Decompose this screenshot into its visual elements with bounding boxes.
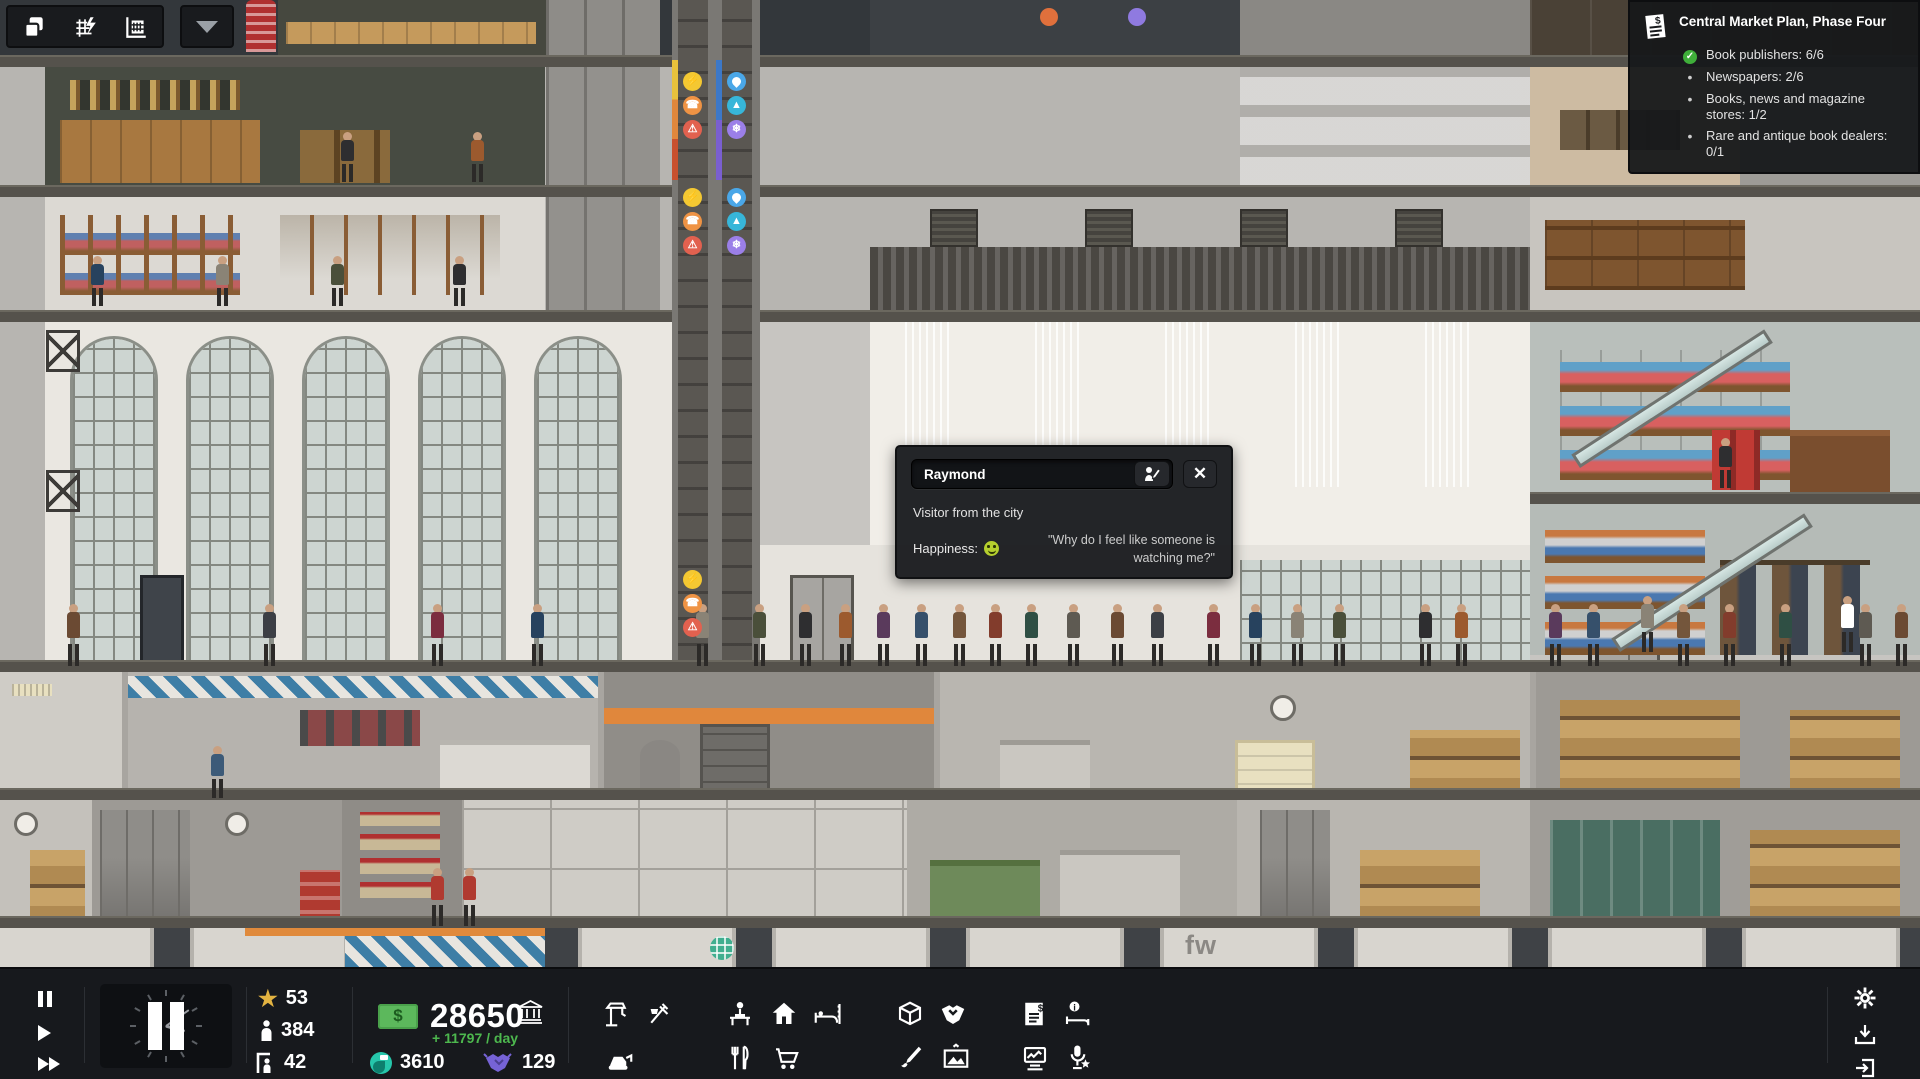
build-media-button[interactable] xyxy=(1014,1038,1056,1078)
star-icon: ★ xyxy=(258,989,278,1009)
riser-gas-icon: ▲ xyxy=(727,96,746,115)
build-offices-button[interactable] xyxy=(719,994,761,1034)
contracts-icon: $ xyxy=(1019,999,1049,1029)
person-quote: "Why do I feel like someone is watching … xyxy=(1045,531,1215,567)
riser-alarm-icon: ⚠ xyxy=(683,618,702,637)
paused-indicator xyxy=(148,1002,184,1050)
locker-bank xyxy=(1260,810,1330,928)
person-figure[interactable] xyxy=(1722,604,1738,666)
ac-vent xyxy=(12,684,52,696)
globe-sign xyxy=(710,936,734,960)
window-panes xyxy=(305,339,387,662)
objectives-title: Central Market Plan, Phase Four xyxy=(1679,12,1886,42)
hvac-unit xyxy=(930,209,978,247)
person-figure[interactable] xyxy=(988,604,1004,666)
exterior-wall xyxy=(1240,0,1530,55)
lobby-door[interactable] xyxy=(140,575,184,667)
jukebox xyxy=(246,0,276,52)
art-icon xyxy=(941,1043,971,1073)
person-figure[interactable] xyxy=(1066,604,1082,666)
objective-item: •Rare and antique book dealers: 0/1 xyxy=(1682,128,1906,160)
build-utilities-button[interactable] xyxy=(639,994,681,1034)
person-popup: ✕ Visitor from the city Happiness: "Why … xyxy=(895,445,1233,579)
settings-button[interactable] xyxy=(1848,983,1882,1013)
person-figure[interactable] xyxy=(1110,604,1126,666)
pub-patron-figure[interactable] xyxy=(470,132,486,182)
build-room-info-button[interactable]: i xyxy=(1056,994,1098,1034)
fire-escape xyxy=(46,330,80,372)
bullet-icon: • xyxy=(1688,91,1693,107)
population-stat: 384 xyxy=(260,1019,314,1042)
person-figure[interactable] xyxy=(1024,604,1040,666)
pub-patron-figure[interactable] xyxy=(340,132,356,182)
bullet-icon: • xyxy=(1688,128,1693,144)
lobby-arched-window xyxy=(302,336,390,662)
construction-icon xyxy=(601,999,631,1029)
chiller-icon xyxy=(1128,8,1146,26)
objective-item: •Books, news and magazine stores: 1/2 xyxy=(1682,91,1906,123)
person-happiness: Happiness: xyxy=(913,541,999,556)
person-figure[interactable] xyxy=(838,604,854,666)
build-restaurants-button[interactable] xyxy=(719,1038,761,1078)
play-button[interactable] xyxy=(38,1025,64,1047)
bank-button[interactable] xyxy=(512,997,548,1025)
slab xyxy=(0,916,1920,928)
chevron-down-icon xyxy=(196,21,218,33)
shopper-figure[interactable] xyxy=(1640,596,1656,652)
game-clock xyxy=(100,984,232,1068)
locker-bank xyxy=(100,810,190,928)
fast-forward-button[interactable] xyxy=(38,1057,64,1079)
mechanical-louver-floor xyxy=(870,247,1530,310)
clerk-figure[interactable] xyxy=(1718,438,1734,488)
game-screen: ⚡☎⚠⚡☎⚠⚡☎⚠▲❄▲❄fw xyxy=(0,0,1920,1079)
build-retail-button[interactable] xyxy=(765,1038,807,1078)
close-button[interactable]: ✕ xyxy=(1183,460,1217,488)
save-button[interactable] xyxy=(1848,1019,1882,1049)
storefront-glass xyxy=(1240,560,1530,668)
window-panes xyxy=(189,339,271,662)
build-events-button[interactable] xyxy=(1057,1038,1099,1078)
person-figure[interactable] xyxy=(1778,604,1794,666)
string-lights xyxy=(1295,322,1339,487)
services-icon xyxy=(938,999,968,1029)
person-name-field[interactable] xyxy=(911,459,1173,489)
security-guard-figure[interactable] xyxy=(430,868,446,926)
prestige-stat: ★ 53 xyxy=(258,987,308,1010)
build-contracts-button[interactable]: $ xyxy=(1013,994,1055,1034)
pause-icon xyxy=(38,991,52,1007)
person-icon xyxy=(260,1020,273,1042)
building-overlay-icon[interactable] xyxy=(123,14,149,40)
awning-strip xyxy=(245,928,545,936)
wall-clock xyxy=(14,812,38,836)
income-per-day: + 11797 / day xyxy=(432,1030,518,1046)
retail-icon xyxy=(771,1043,801,1073)
supplies-icon xyxy=(895,999,925,1029)
person-description: Visitor from the city xyxy=(913,505,1023,520)
person-figure[interactable] xyxy=(876,604,892,666)
person-figure[interactable] xyxy=(262,604,278,666)
favors-stat: 129 xyxy=(482,1051,555,1074)
influence-icon xyxy=(370,1052,392,1074)
riser-water-icon xyxy=(727,72,746,91)
objectives-panel: $ Central Market Plan, Phase Four ✓Book … xyxy=(1628,0,1920,174)
box-stack xyxy=(1790,710,1900,800)
elevator-bay[interactable] xyxy=(546,0,660,55)
person-figure[interactable] xyxy=(1418,604,1434,666)
sacks-pallet xyxy=(360,812,440,898)
phone-poster xyxy=(640,740,680,792)
apartments-icon xyxy=(769,999,799,1029)
person-figure[interactable] xyxy=(1290,604,1306,666)
riser-alarm-icon: ⚠ xyxy=(683,120,702,139)
svg-text:$: $ xyxy=(1038,1004,1044,1015)
play-icon xyxy=(38,1025,51,1041)
slab xyxy=(0,310,1920,322)
exit-button[interactable] xyxy=(1848,1053,1882,1079)
riser-phone-icon: ☎ xyxy=(683,212,702,231)
download-icon xyxy=(1854,1023,1876,1045)
influence-stat: 3610 xyxy=(370,1051,445,1074)
person-figure[interactable] xyxy=(752,604,768,666)
elevator-shaft[interactable] xyxy=(546,197,660,310)
window-panes xyxy=(537,339,619,662)
barber-stripes xyxy=(345,936,545,967)
exterior-edge xyxy=(0,322,45,672)
build-construction-button[interactable] xyxy=(595,994,637,1034)
hazard-stripe xyxy=(604,708,934,724)
events-icon xyxy=(1063,1043,1093,1073)
lobby-arched-window xyxy=(534,336,622,662)
person-figure[interactable] xyxy=(430,604,446,666)
offices-icon xyxy=(725,999,755,1029)
person-figure[interactable] xyxy=(952,604,968,666)
shelf-unit xyxy=(1545,220,1745,290)
hotels-icon xyxy=(812,999,842,1029)
person-figure[interactable] xyxy=(1248,604,1264,666)
security-guard-figure[interactable] xyxy=(462,868,478,926)
store-desk xyxy=(1790,430,1890,492)
slab xyxy=(0,788,1920,800)
utilities-icon xyxy=(645,999,675,1029)
locker-wall xyxy=(462,800,907,928)
chalkboard xyxy=(1550,820,1720,928)
person-figure[interactable] xyxy=(1676,604,1692,666)
riser-phone-icon: ☎ xyxy=(683,594,702,613)
bottom-toolbar: ★ 53 384 42 $ 28650 + 11797 / day xyxy=(0,967,1920,1079)
person-figure[interactable] xyxy=(66,604,82,666)
person-figure[interactable] xyxy=(1858,604,1874,666)
clothes-racks xyxy=(60,215,240,295)
lobby-arched-window xyxy=(186,336,274,662)
build-apartments-button[interactable] xyxy=(763,994,805,1034)
check-icon: ✓ xyxy=(1683,50,1697,64)
person-figure[interactable] xyxy=(914,604,930,666)
person-figure[interactable] xyxy=(1454,604,1470,666)
money-icon: $ xyxy=(378,1004,418,1029)
string-lights xyxy=(1425,322,1469,487)
svg-text:i: i xyxy=(1073,1002,1076,1012)
riser-hvac-icon: ❄ xyxy=(727,120,746,139)
box-stack xyxy=(1750,830,1900,928)
slab xyxy=(1530,492,1920,504)
person-figure[interactable] xyxy=(1894,604,1910,666)
diner-counter xyxy=(286,22,536,44)
decor-icon xyxy=(895,1043,925,1073)
build-art-button[interactable] xyxy=(935,1038,977,1078)
demolish-icon xyxy=(605,1043,635,1073)
bullet-icon: • xyxy=(1688,69,1693,85)
person-figure[interactable] xyxy=(1586,604,1602,666)
exit-door-icon xyxy=(1854,1057,1876,1079)
slab xyxy=(0,185,1920,197)
visitors-stat: 42 xyxy=(256,1051,306,1074)
bank-icon xyxy=(517,999,544,1024)
elevator-shaft[interactable] xyxy=(546,67,660,185)
shopper-figure[interactable] xyxy=(90,256,106,306)
exterior-windows xyxy=(1240,67,1530,185)
person-figure[interactable] xyxy=(1150,604,1166,666)
tool-board xyxy=(300,710,420,746)
build-hotels-button[interactable] xyxy=(806,994,848,1034)
person-figure[interactable] xyxy=(798,604,814,666)
bar-counter xyxy=(60,120,260,183)
view-toolbar xyxy=(6,5,164,48)
wall-clock xyxy=(1270,695,1296,721)
happy-face-icon xyxy=(984,541,999,556)
wall-clock xyxy=(225,812,249,836)
person-figure[interactable] xyxy=(1206,604,1222,666)
riser-phone-icon: ☎ xyxy=(683,96,702,115)
build-services-button[interactable] xyxy=(932,994,974,1034)
hvac-unit xyxy=(1240,209,1288,247)
rename-icon xyxy=(1143,466,1161,482)
person-figure[interactable] xyxy=(1548,604,1564,666)
objective-item: ✓Book publishers: 6/6 xyxy=(1682,47,1906,64)
shopper-figure[interactable] xyxy=(452,256,468,306)
rename-person-button[interactable] xyxy=(1134,461,1170,487)
shopper-figure[interactable] xyxy=(215,256,231,306)
worker-figure[interactable] xyxy=(210,746,226,798)
layers-icon[interactable] xyxy=(21,14,47,40)
riser-power-icon: ⚡ xyxy=(683,72,702,91)
hvac-unit xyxy=(1395,209,1443,247)
pause-button[interactable] xyxy=(38,991,64,1013)
riser-hvac-icon: ❄ xyxy=(727,236,746,255)
contract-icon: $ xyxy=(1642,12,1669,42)
shopper-figure[interactable] xyxy=(1840,596,1856,652)
riser-water-icon xyxy=(727,188,746,207)
person-name-input[interactable] xyxy=(912,467,1172,482)
build-decor-button[interactable] xyxy=(889,1038,931,1078)
riser-power-icon: ⚡ xyxy=(683,188,702,207)
fast-forward-icon xyxy=(38,1057,49,1071)
cold-storage-room[interactable] xyxy=(870,0,1240,55)
bar-shelves xyxy=(70,80,240,110)
room-info-icon: i xyxy=(1062,999,1092,1029)
zoning-grid-icon[interactable] xyxy=(72,14,98,40)
storage-shelf xyxy=(1560,700,1740,800)
riser-gas-icon: ▲ xyxy=(727,212,746,231)
fire-escape xyxy=(46,470,80,512)
storefront-sign: fw xyxy=(1185,930,1217,961)
workshop-awning xyxy=(128,676,598,698)
restaurants-icon xyxy=(725,1043,755,1073)
build-demolish-button[interactable] xyxy=(599,1038,641,1078)
person-figure[interactable] xyxy=(1332,604,1348,666)
objectives-list: ✓Book publishers: 6/6•Newspapers: 2/6•Bo… xyxy=(1642,47,1906,160)
toolbar-collapse-button[interactable] xyxy=(180,5,234,48)
riser-alarm-icon: ⚠ xyxy=(683,236,702,255)
door-person-icon xyxy=(256,1052,276,1074)
handshake-icon xyxy=(482,1052,514,1074)
gear-icon xyxy=(1853,986,1877,1010)
build-supplies-button[interactable] xyxy=(889,994,931,1034)
close-icon: ✕ xyxy=(1193,464,1207,484)
shopper-figure[interactable] xyxy=(330,256,346,306)
hvac-unit xyxy=(1085,209,1133,247)
freezer-icon xyxy=(1040,8,1058,26)
riser-power-icon: ⚡ xyxy=(683,570,702,589)
objective-item: •Newspapers: 2/6 xyxy=(1682,69,1906,86)
person-figure[interactable] xyxy=(530,604,546,666)
media-icon xyxy=(1020,1043,1050,1073)
